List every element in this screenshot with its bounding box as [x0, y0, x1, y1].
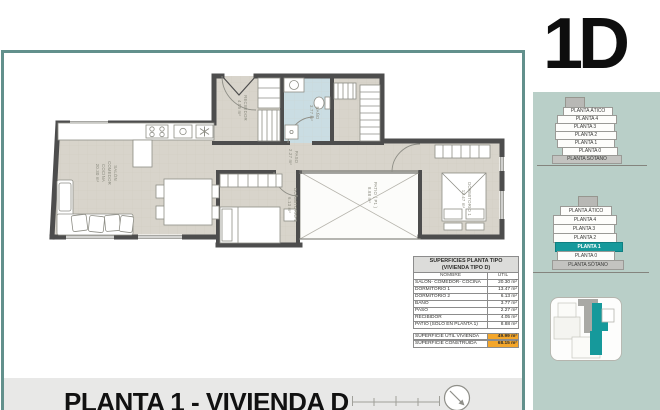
- total-name: SUPERFICIE ÚTIL VIVIENDA: [414, 334, 488, 340]
- surfaces-table: SUPERFICIES PLANTA TIPO (VIVIENDA TIPO D…: [413, 256, 519, 348]
- table-totals: SUPERFICIE ÚTIL VIVIENDA 49.99 m² SUPERF…: [413, 333, 519, 348]
- table-row: RECIBIDOR 4.05 m²: [413, 315, 519, 322]
- ground-line: [533, 272, 649, 273]
- table-row: BAÑO 3.77 m²: [413, 301, 519, 308]
- total-value-highlight: 68.15 m²: [488, 341, 518, 347]
- total-row-construida: SUPERFICIE CONSTRUIDA 68.15 m²: [413, 340, 519, 348]
- room-label-bano: BAÑO: [315, 107, 320, 120]
- floor-plan: SALÓN COMEDOR COCINA 20.30 m² RECIBIDOR …: [42, 73, 512, 258]
- room-label-salon: COMEDOR: [107, 161, 112, 185]
- row-name: DORMITORIO 1: [414, 287, 488, 293]
- total-value-highlight: 49.99 m²: [488, 334, 518, 340]
- row-value: 4.05 m²: [488, 315, 518, 321]
- room-label-salon: COCINA: [101, 164, 106, 182]
- room-area-dormitorio1: 13.47 m²: [461, 190, 466, 209]
- row-value: 8.88 m²: [488, 322, 518, 328]
- surfaces-table-subtitle: (VIVIENDA TIPO D): [414, 265, 518, 272]
- stack-floor-sotano: PLANTA SÓTANO: [552, 260, 624, 270]
- total-row-util: SUPERFICIE ÚTIL VIVIENDA 49.99 m²: [413, 333, 519, 341]
- row-name: SALÓN- COMEDOR- COCINA: [414, 280, 488, 286]
- stack-floor-sotano: PLANTA SÓTANO: [552, 155, 622, 164]
- room-label-recibidor: RECIBIDOR: [243, 95, 248, 121]
- room-label-salon: SALÓN: [113, 165, 118, 181]
- row-name: PATIO (SOLO EN PLANTA 1): [414, 322, 488, 328]
- room-area-paso: 2.27 m²: [288, 149, 293, 165]
- row-value: 6.13 m²: [488, 294, 518, 300]
- north-arrow-icon: [443, 384, 471, 410]
- table-row: PATIO (SOLO EN PLANTA 1) 8.88 m²: [413, 322, 519, 329]
- building-stack-highlight: PLANTA ÁTICO PLANTA 4 PLANTA 3 PLANTA 2 …: [533, 196, 660, 270]
- row-value: 20.30 m²: [488, 280, 518, 286]
- table-row: DORMITORIO 1 13.47 m²: [413, 287, 519, 294]
- room-area-bano: 3.77 m²: [309, 105, 314, 121]
- row-name: BAÑO: [414, 301, 488, 307]
- room-label-dormitorio2: DORMITORIO 2: [293, 188, 298, 222]
- row-value: 3.77 m²: [488, 301, 518, 307]
- key-plan: [550, 297, 622, 361]
- side-panel: PLANTA ÁTICO PLANTA 4 PLANTA 3 PLANTA 2 …: [533, 92, 660, 410]
- table-row: PASO 2.27 m²: [413, 308, 519, 315]
- room-area-salon: 20.30 m²: [95, 164, 100, 183]
- room-area-recibidor: 4.05 m²: [237, 100, 242, 116]
- row-name: DORMITORIO 2: [414, 294, 488, 300]
- row-value: 13.47 m²: [488, 287, 518, 293]
- total-name: SUPERFICIE CONSTRUIDA: [414, 341, 488, 347]
- row-value: 2.27 m²: [488, 308, 518, 314]
- scale-bar: [352, 394, 442, 408]
- room-label-paso: PASO: [294, 151, 299, 164]
- dining-table: [156, 179, 219, 225]
- surfaces-table-title: SUPERFICIES PLANTA TIPO: [414, 258, 518, 265]
- unit-code: 1D: [538, 8, 630, 80]
- table-row: SALÓN- COMEDOR- COCINA 20.30 m²: [413, 280, 519, 287]
- room-label-dormitorio1: DORMITORIO 1: [467, 182, 472, 216]
- row-name: PASO: [414, 308, 488, 314]
- row-name: RECIBIDOR: [414, 315, 488, 321]
- plan-sheet: SALÓN COMEDOR COCINA 20.30 m² RECIBIDOR …: [0, 0, 660, 410]
- building-stack-overview: PLANTA ÁTICO PLANTA 4 PLANTA 3 PLANTA 2 …: [533, 97, 660, 164]
- room-label-patio: PATIO ( P1 ): [373, 182, 378, 209]
- ground-line: [537, 165, 647, 166]
- room-area-patio: 8.88 m²: [367, 187, 372, 203]
- table-row: DORMITORIO 2 6.13 m²: [413, 294, 519, 301]
- page-title: PLANTA 1 - VIVIENDA D: [64, 387, 349, 410]
- room-area-dormitorio2: 6.13 m²: [287, 197, 292, 213]
- col-header-nombre: NOMBRE: [414, 273, 488, 279]
- col-header-util: ÚTIL: [488, 273, 518, 279]
